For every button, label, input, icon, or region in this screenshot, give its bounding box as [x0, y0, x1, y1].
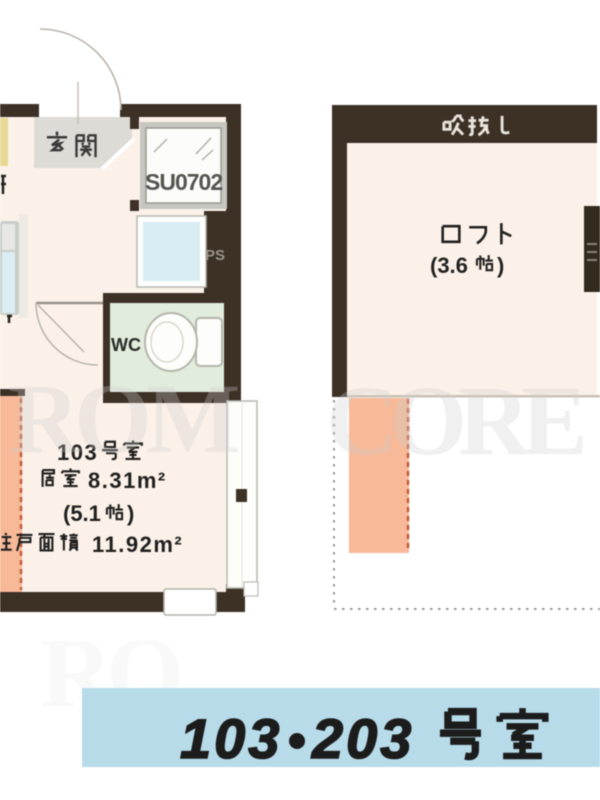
svg-text:PS: PS: [205, 247, 225, 264]
svg-text:203: 203: [311, 707, 414, 770]
svg-text:(5.1: (5.1: [63, 501, 101, 526]
svg-text:CORE: CORE: [326, 365, 583, 476]
svg-text:103: 103: [180, 707, 282, 770]
svg-text:SU0702: SU0702: [145, 169, 222, 195]
svg-text:11.92m²: 11.92m²: [92, 532, 183, 557]
svg-text:): ): [497, 253, 504, 278]
svg-text:ROM: ROM: [8, 363, 238, 474]
svg-text:): ): [127, 501, 134, 526]
svg-text:(3.6: (3.6: [430, 253, 468, 278]
svg-text:WC: WC: [111, 335, 141, 355]
